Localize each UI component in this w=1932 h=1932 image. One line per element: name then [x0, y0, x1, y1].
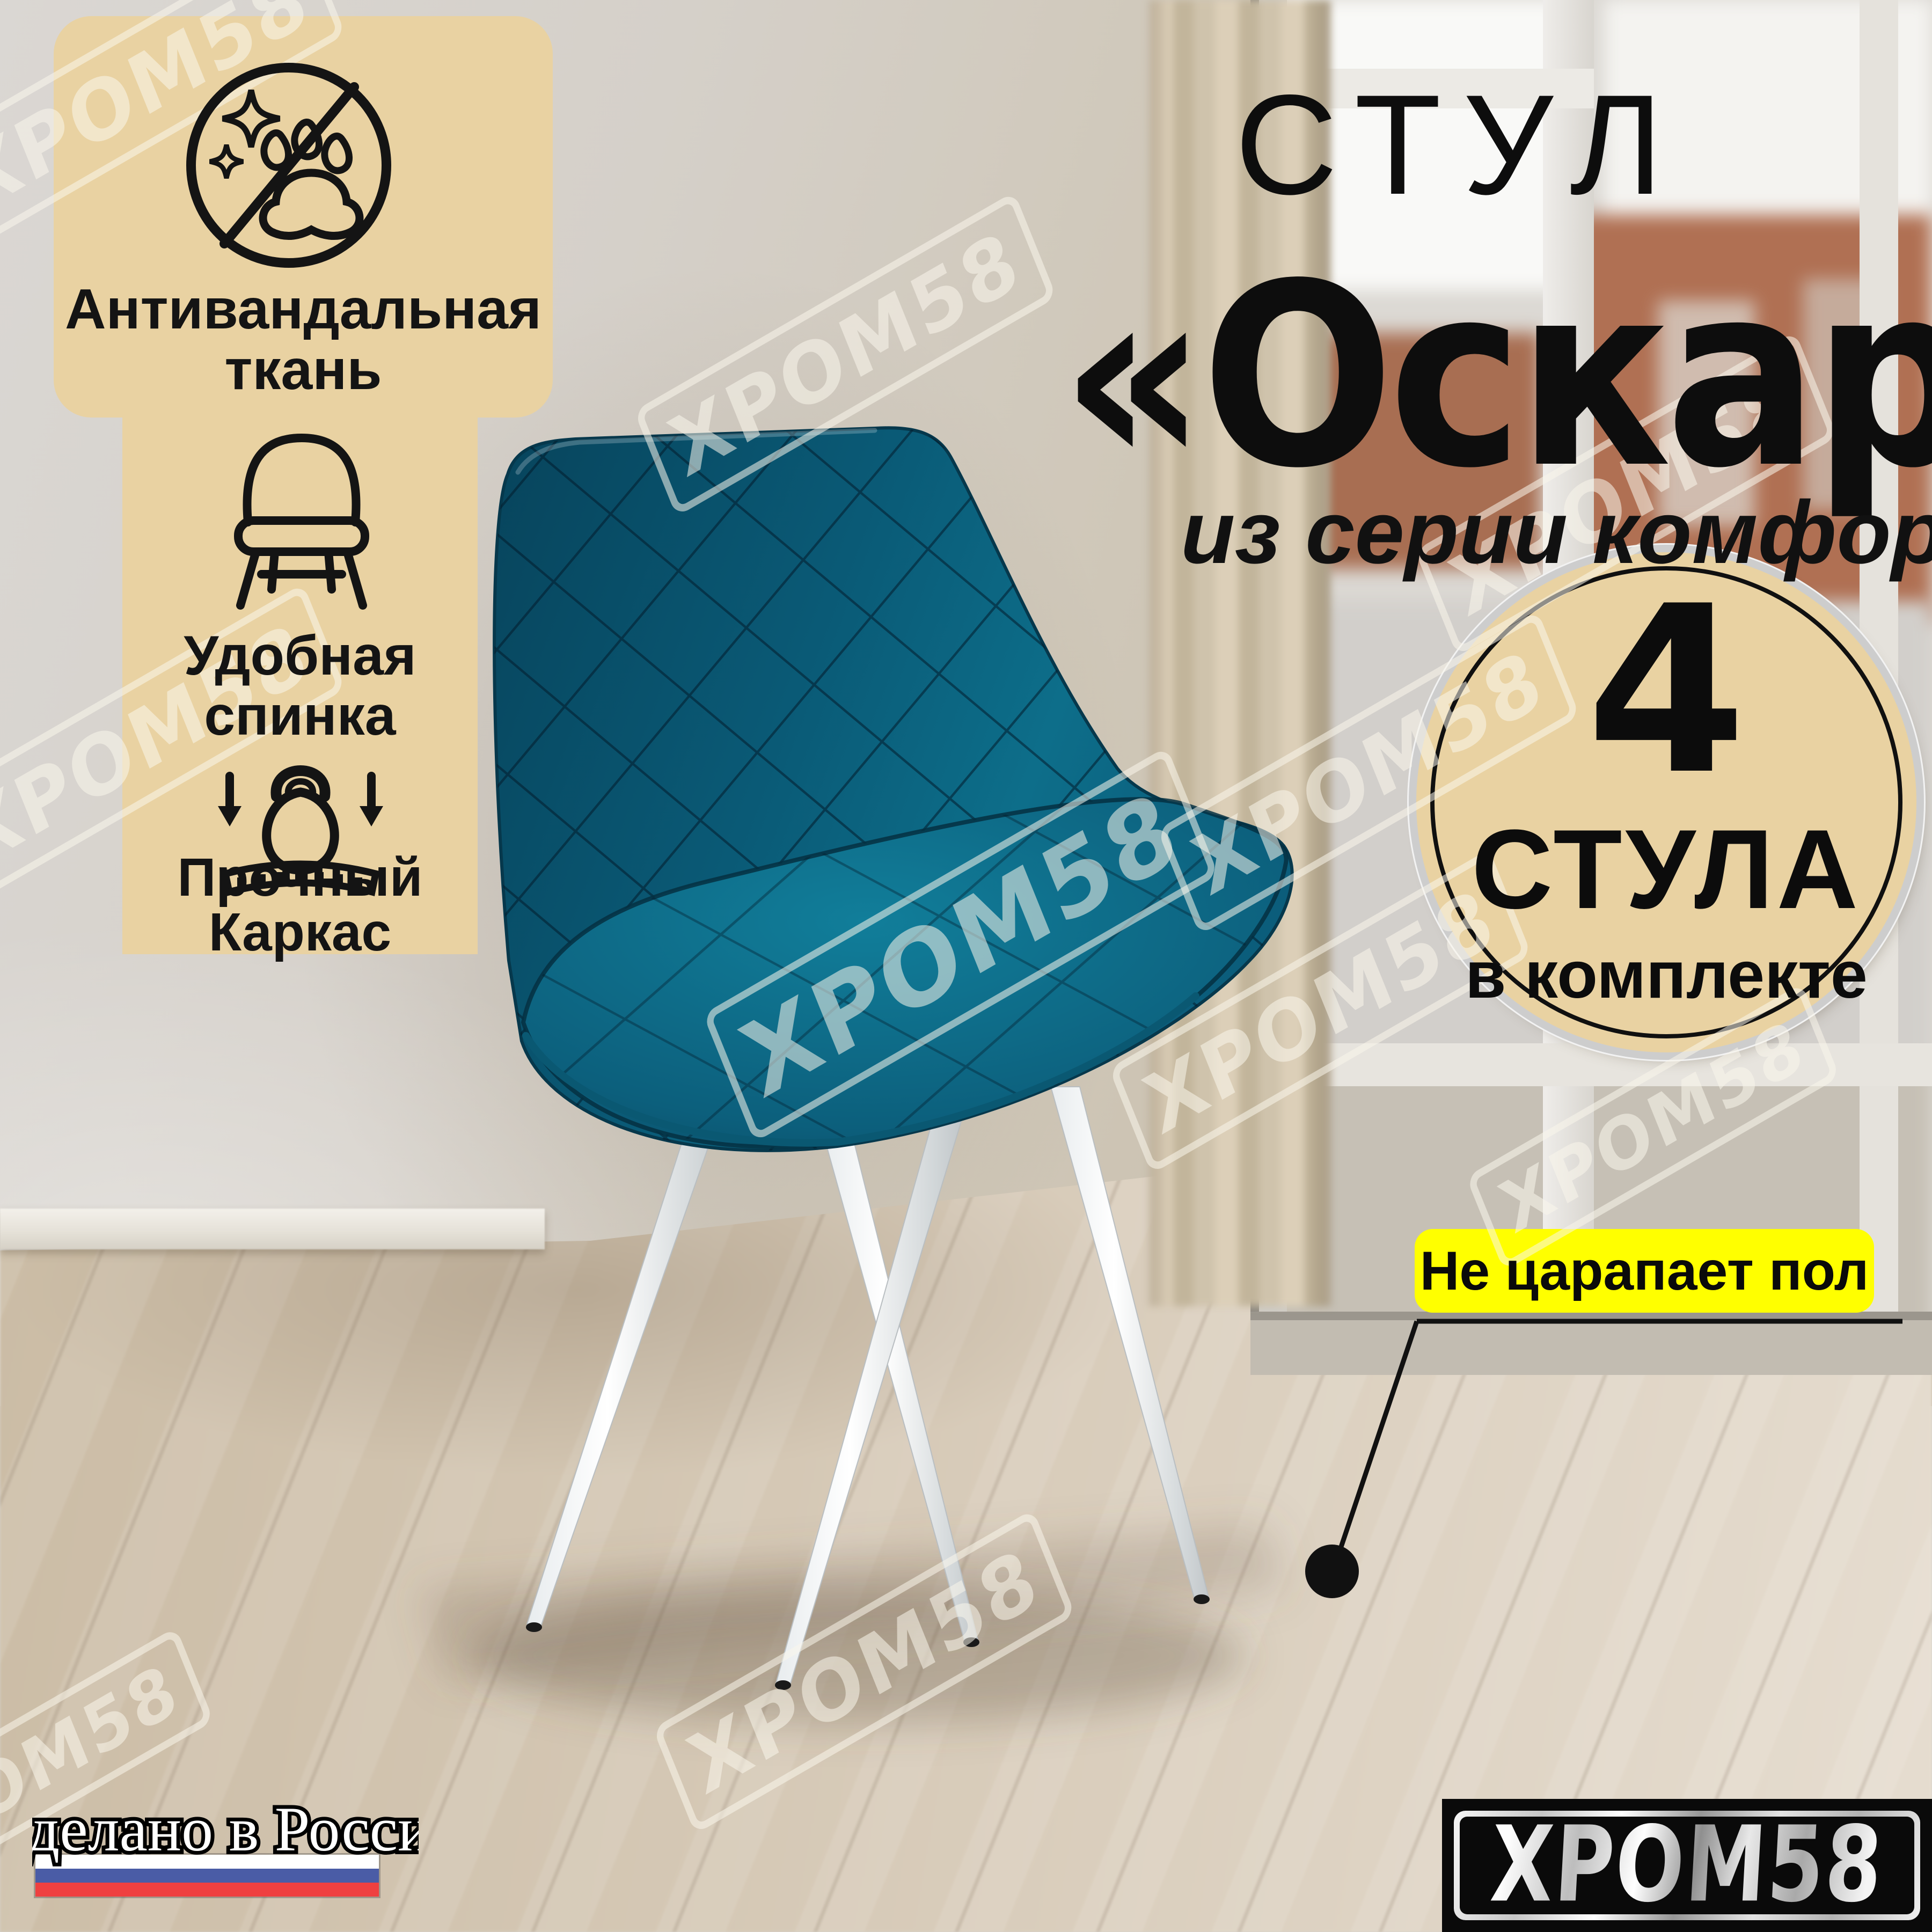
bundle-note: в комплекте	[1465, 942, 1868, 1008]
feature-backrest-line1: Удобная	[122, 626, 478, 686]
made-in-russia: Сделано в России	[32, 1797, 419, 1867]
feature-backrest-line2: спинка	[122, 686, 478, 746]
feature-frame-label: Прочный Каркас	[122, 850, 478, 960]
flag-stripe-blue	[35, 1869, 379, 1883]
floor-safe-label: Не царапает пол	[1420, 1240, 1869, 1302]
bundle-badge-content: 4 СТУЛА в комплекте	[1416, 552, 1916, 1052]
floor-safe-callout: Не царапает пол	[1415, 1229, 1874, 1313]
feature-frame-line1: Прочный	[122, 850, 478, 905]
brand-logo-box: ХРОМ58	[1442, 1799, 1932, 1932]
feature-fabric-line1: Антивандальная	[54, 279, 553, 340]
product-name: «Оскар»	[1060, 230, 1891, 523]
made-in-russia-text: Сделано в России	[32, 1797, 419, 1864]
brand-logo-text: ХРОМ58	[1488, 1813, 1886, 1918]
product-card: Не царапает пол ХРОМ58 Антивандальная тк…	[0, 0, 1932, 1932]
brand-logo-frame: ХРОМ58	[1454, 1811, 1920, 1920]
bundle-unit: СТУЛА	[1472, 813, 1861, 926]
feature-backrest-label: Удобная спинка	[122, 626, 478, 746]
bundle-count: 4	[1586, 586, 1746, 798]
flag-stripe-red	[35, 1883, 379, 1897]
feature-fabric-label: Антивандальная ткань	[54, 279, 553, 400]
feature-frame-line2: Каркас	[122, 905, 478, 960]
chair-icon	[210, 428, 393, 616]
feature-fabric-line2: ткань	[54, 340, 553, 400]
product-kicker: СТУЛ	[1224, 63, 1696, 227]
anti-vandal-icon	[171, 48, 407, 284]
brand-logo-inner: ХРОМ58	[1460, 1817, 1914, 1914]
